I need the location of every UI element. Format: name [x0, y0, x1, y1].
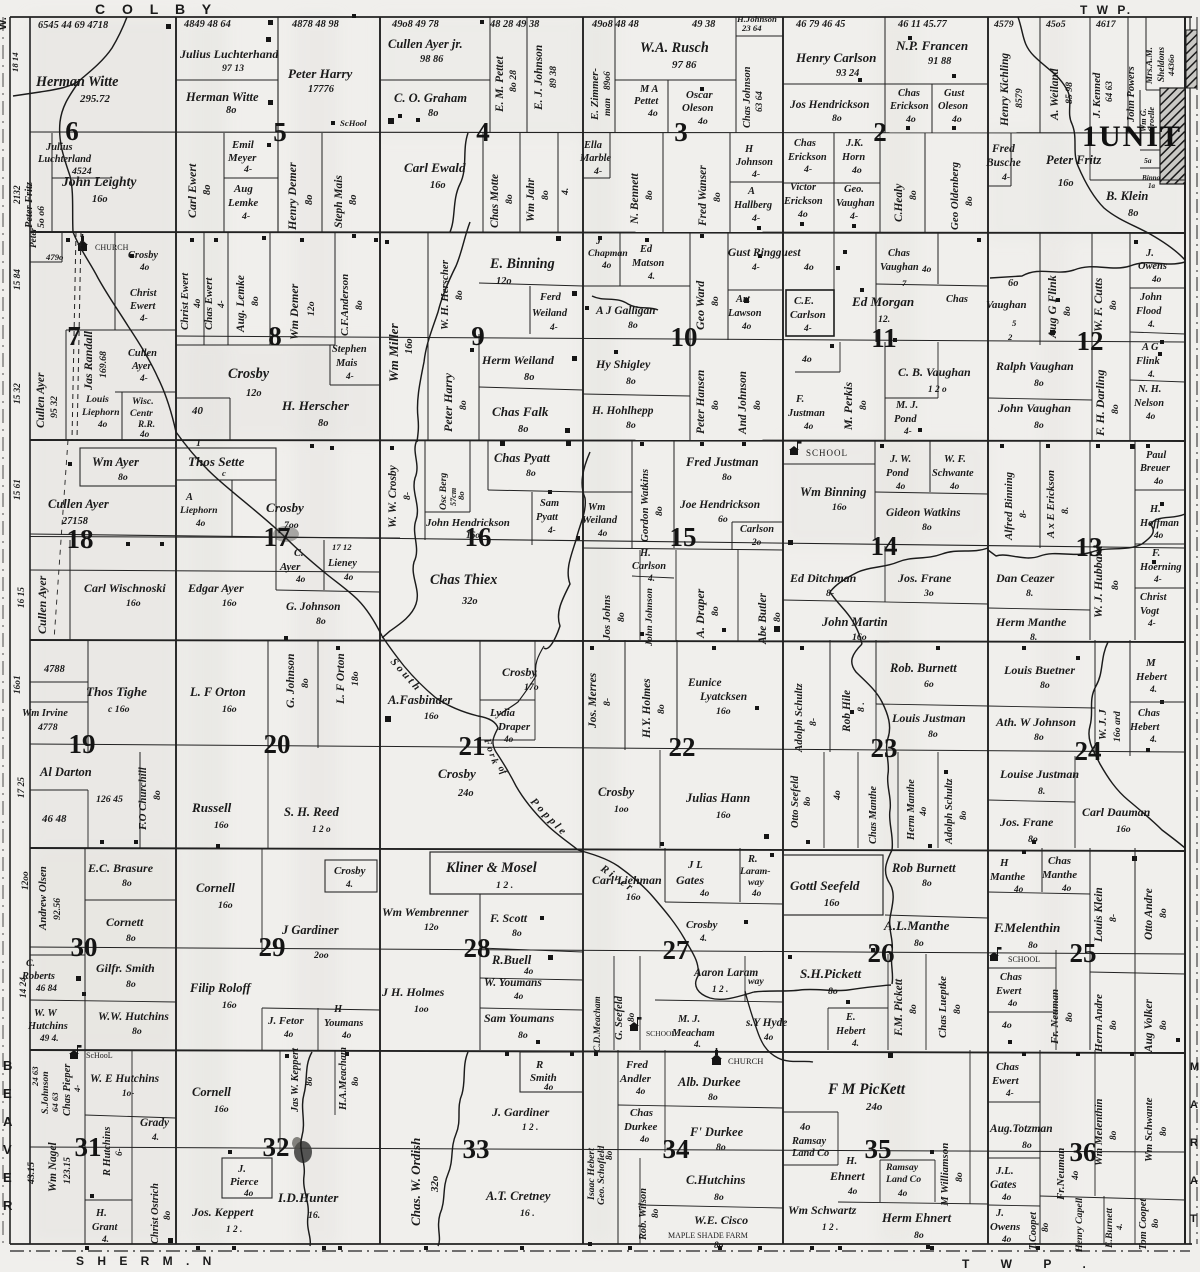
- svg-text:8o: 8o: [454, 290, 465, 300]
- svg-text:11: 11: [871, 323, 897, 353]
- svg-text:2oo: 2oo: [313, 950, 329, 961]
- svg-text:1oo: 1oo: [614, 804, 629, 815]
- svg-text:12o: 12o: [306, 301, 317, 316]
- svg-text:8o: 8o: [504, 194, 515, 204]
- svg-text:Aug: Aug: [233, 183, 253, 195]
- svg-text:Julias Hann: Julias Hann: [685, 791, 750, 805]
- svg-text:Grant: Grant: [92, 1222, 119, 1233]
- svg-text:4o: 4o: [139, 263, 150, 273]
- svg-text:1 2 o: 1 2 o: [312, 825, 331, 835]
- svg-text:Joe Hendrickson: Joe Hendrickson: [679, 499, 760, 511]
- svg-text:Carlson: Carlson: [740, 524, 774, 535]
- svg-text:Ewert: Ewert: [129, 301, 157, 312]
- svg-text:Christ: Christ: [130, 288, 158, 299]
- svg-text:8o: 8o: [354, 300, 365, 310]
- svg-text:4849 48 64: 4849 48 64: [183, 19, 231, 30]
- svg-text:12o: 12o: [246, 388, 262, 399]
- svg-text:Schwante: Schwante: [932, 468, 974, 479]
- svg-text:15 32: 15 32: [13, 383, 23, 404]
- svg-text:8o: 8o: [714, 1192, 724, 1203]
- svg-text:8o: 8o: [518, 424, 528, 435]
- svg-text:A. Draper: A. Draper: [693, 588, 707, 639]
- svg-text:8o: 8o: [656, 704, 667, 714]
- svg-text:6o: 6o: [1008, 278, 1018, 289]
- svg-text:J. W.: J. W.: [889, 454, 911, 465]
- svg-text:And Johnson: And Johnson: [737, 371, 749, 435]
- svg-text:8o: 8o: [316, 616, 326, 627]
- svg-text:Dan Ceazer: Dan Ceazer: [995, 571, 1055, 585]
- svg-text:C. B. Vaughan: C. B. Vaughan: [898, 365, 971, 379]
- svg-text:Cornell: Cornell: [192, 1085, 231, 1099]
- svg-text:4o: 4o: [1013, 885, 1024, 895]
- svg-text:Meacham: Meacham: [671, 1028, 715, 1039]
- svg-text:6545 44 69 4718: 6545 44 69 4718: [38, 20, 109, 31]
- svg-text:8o: 8o: [712, 192, 723, 202]
- svg-text:Gust: Gust: [944, 88, 965, 99]
- svg-text:8-: 8-: [402, 492, 413, 500]
- svg-text:8-: 8-: [602, 698, 613, 706]
- svg-text:Crosby: Crosby: [266, 500, 304, 515]
- svg-text:8o: 8o: [1028, 940, 1038, 951]
- svg-text:Adolph Schultz: Adolph Schultz: [793, 683, 805, 753]
- svg-text:12: 12: [1077, 326, 1104, 356]
- svg-text:89o6: 89o6: [603, 71, 613, 90]
- svg-text:1 2 o: 1 2 o: [928, 385, 947, 395]
- svg-text:8o: 8o: [126, 933, 136, 944]
- svg-text:N. H.: N. H.: [1137, 384, 1161, 395]
- svg-text:C.: C.: [26, 958, 35, 969]
- svg-text:M A: M A: [639, 84, 658, 95]
- svg-text:Paul: Paul: [1146, 450, 1166, 461]
- svg-text:Jos. Frane: Jos. Frane: [999, 815, 1054, 829]
- svg-text:8o: 8o: [832, 113, 842, 124]
- svg-text:Osc Berg: Osc Berg: [438, 473, 449, 510]
- svg-text:8o: 8o: [1109, 1130, 1119, 1140]
- svg-text:M. Perkis: M. Perkis: [841, 382, 855, 431]
- svg-text:E. Binning: E. Binning: [489, 256, 555, 272]
- svg-text:V: V: [3, 1142, 12, 1157]
- svg-text:Aug Volker: Aug Volker: [1143, 999, 1155, 1053]
- svg-text:Fred Wanser: Fred Wanser: [697, 165, 709, 227]
- svg-text:5: 5: [273, 117, 287, 147]
- svg-text:Ath. W Johnson: Ath. W Johnson: [995, 715, 1076, 729]
- svg-text:Hutchins: Hutchins: [27, 1021, 68, 1032]
- svg-text:Horn: Horn: [841, 152, 865, 163]
- svg-text:John Johnson: John Johnson: [644, 588, 655, 647]
- svg-text:W. F. Cutts: W. F. Cutts: [1091, 277, 1105, 332]
- svg-text:8o: 8o: [628, 320, 638, 331]
- svg-text:Christ Ewert: Christ Ewert: [179, 272, 191, 330]
- svg-text:4o: 4o: [801, 354, 812, 365]
- svg-text:Weiland: Weiland: [532, 308, 568, 319]
- svg-text:4-: 4-: [139, 314, 148, 324]
- svg-text:R.Buell: R.Buell: [491, 953, 532, 967]
- svg-text:Herm Manthe: Herm Manthe: [906, 779, 917, 841]
- svg-text:Carl Ewert: Carl Ewert: [185, 163, 199, 218]
- svg-text:2132: 2132: [13, 185, 23, 205]
- svg-text:Crosby: Crosby: [334, 865, 366, 877]
- svg-text:33: 33: [463, 1134, 490, 1164]
- svg-text:8o: 8o: [1022, 1140, 1032, 1151]
- svg-text:E. M. Pettet: E. M. Pettet: [494, 55, 506, 113]
- svg-text:Jos Johns: Jos Johns: [601, 595, 613, 641]
- svg-text:Christ: Christ: [1140, 592, 1168, 603]
- svg-text:W.E. Cisco: W.E. Cisco: [694, 1213, 748, 1227]
- svg-text:M: M: [1190, 1061, 1199, 1073]
- svg-text:Chas Lueptke: Chas Lueptke: [937, 976, 949, 1038]
- svg-text:Abe Butler: Abe Butler: [757, 592, 769, 645]
- svg-text:8o: 8o: [1041, 1222, 1051, 1232]
- svg-text:F.O Churchill: F.O Churchill: [137, 766, 149, 831]
- svg-text:Vaughan: Vaughan: [836, 198, 875, 209]
- svg-text:Herm Weiland: Herm Weiland: [481, 353, 555, 367]
- svg-text:Wm Schwante: Wm Schwante: [1143, 1097, 1155, 1162]
- svg-text:Hy Shigley: Hy Shigley: [595, 357, 651, 371]
- svg-text:Flood: Flood: [1135, 306, 1162, 317]
- svg-text:8o: 8o: [1034, 378, 1044, 389]
- svg-text:1 2 .: 1 2 .: [822, 1223, 838, 1233]
- svg-text:4-: 4-: [217, 300, 227, 309]
- svg-text:4o: 4o: [1061, 884, 1072, 894]
- svg-text:49 38: 49 38: [691, 19, 716, 30]
- svg-text:Alb. Durkee: Alb. Durkee: [677, 1075, 741, 1089]
- svg-text:Emil: Emil: [231, 139, 255, 151]
- svg-text:4o: 4o: [97, 420, 108, 430]
- svg-text:9: 9: [471, 321, 485, 351]
- svg-text:8.: 8.: [1030, 632, 1037, 643]
- svg-text:MAPLE SHADE FARM: MAPLE SHADE FARM: [668, 1231, 748, 1240]
- svg-text:16o: 16o: [430, 180, 446, 191]
- svg-text:Oleson: Oleson: [938, 101, 968, 112]
- svg-text:8o: 8o: [1108, 1020, 1119, 1030]
- svg-text:way: way: [748, 877, 764, 888]
- svg-text:8o: 8o: [914, 938, 924, 949]
- svg-text:8o: 8o: [152, 790, 163, 800]
- svg-text:8o: 8o: [627, 1012, 637, 1022]
- svg-text:Alfred Binning: Alfred Binning: [1003, 471, 1015, 541]
- svg-text:Cornett: Cornett: [106, 915, 144, 929]
- svg-text:4o: 4o: [763, 1033, 774, 1043]
- svg-text:Russell: Russell: [191, 800, 232, 815]
- svg-text:64 63: 64 63: [50, 1092, 60, 1112]
- svg-text:J.: J.: [995, 1208, 1004, 1219]
- svg-text:Manthe: Manthe: [1041, 869, 1077, 881]
- svg-text:4-: 4-: [1005, 1089, 1014, 1099]
- svg-text:8-: 8-: [1018, 510, 1029, 518]
- svg-text:18 14: 18 14: [10, 52, 20, 72]
- svg-text:Chas. W. Ordish: Chas. W. Ordish: [408, 1138, 423, 1226]
- svg-text:64 63: 64 63: [1105, 81, 1115, 102]
- svg-text:Pettet: Pettet: [634, 96, 659, 107]
- svg-text:29: 29: [259, 932, 286, 962]
- svg-text:H.A.Meacham: H.A.Meacham: [338, 1047, 349, 1111]
- svg-text:4o: 4o: [847, 1187, 858, 1197]
- svg-text:Cullen Ayer: Cullen Ayer: [48, 497, 109, 511]
- svg-text:4-: 4-: [241, 211, 250, 222]
- svg-text:4-: 4-: [345, 372, 354, 382]
- svg-text:Ramsay: Ramsay: [791, 1136, 826, 1147]
- svg-text:Flink: Flink: [1135, 356, 1160, 367]
- svg-text:Chas: Chas: [1138, 708, 1160, 719]
- svg-text:Hebert: Hebert: [835, 1026, 867, 1037]
- svg-text:Herman Witte: Herman Witte: [185, 90, 259, 104]
- svg-text:4-: 4-: [1153, 575, 1162, 585]
- svg-text:4.: 4.: [647, 272, 655, 282]
- svg-text:Weiland: Weiland: [582, 515, 618, 526]
- svg-text:A: A: [185, 492, 193, 503]
- svg-text:Kliner & Mosel: Kliner & Mosel: [445, 860, 537, 876]
- svg-text:31: 31: [75, 1132, 102, 1162]
- svg-text:8o: 8o: [708, 1092, 718, 1103]
- svg-text:8o: 8o: [1064, 1012, 1075, 1022]
- svg-text:J.: J.: [237, 1164, 246, 1175]
- svg-text:4o: 4o: [1151, 275, 1162, 285]
- svg-text:16 .: 16 .: [520, 1208, 535, 1219]
- svg-text:H.: H.: [95, 1208, 107, 1219]
- svg-text:4o: 4o: [1007, 999, 1018, 1009]
- svg-text:12oo: 12oo: [21, 871, 31, 890]
- svg-text:E: E: [3, 1170, 12, 1185]
- svg-text:8o: 8o: [1034, 732, 1044, 743]
- svg-text:Pierce: Pierce: [230, 1176, 259, 1188]
- svg-text:4-: 4-: [903, 427, 912, 437]
- svg-text:8.: 8.: [1026, 588, 1033, 599]
- svg-text:Cullen Ayer jr.: Cullen Ayer jr.: [388, 37, 463, 51]
- svg-text:Edgar Ayer: Edgar Ayer: [187, 581, 244, 595]
- svg-text:4o: 4o: [513, 992, 524, 1002]
- svg-text:35: 35: [865, 1134, 892, 1164]
- svg-text:John Leighty: John Leighty: [61, 174, 137, 189]
- svg-text:Carl Dauman: Carl Dauman: [1082, 805, 1151, 819]
- svg-text:8o: 8o: [714, 1241, 724, 1251]
- svg-text:Chas Pyatt: Chas Pyatt: [494, 451, 550, 465]
- svg-text:46 84: 46 84: [35, 984, 57, 994]
- svg-text:15: 15: [670, 522, 697, 552]
- svg-text:Louis Buetner: Louis Buetner: [1003, 663, 1075, 677]
- svg-text:4-: 4-: [1147, 619, 1156, 629]
- svg-text:1 2 .: 1 2 .: [496, 880, 513, 891]
- svg-text:4-: 4-: [139, 374, 148, 384]
- svg-text:36: 36: [1070, 1137, 1097, 1167]
- svg-text:8o: 8o: [318, 418, 328, 429]
- svg-text:16o: 16o: [716, 706, 731, 717]
- svg-text:4-: 4-: [593, 166, 602, 177]
- svg-text:Crosby: Crosby: [686, 919, 718, 931]
- svg-text:4o: 4o: [343, 573, 354, 583]
- svg-text:Manthe: Manthe: [989, 871, 1025, 883]
- svg-text:8o: 8o: [118, 472, 128, 483]
- svg-text:8o: 8o: [512, 928, 522, 939]
- svg-text:4o: 4o: [597, 529, 608, 539]
- svg-text:10: 10: [671, 322, 698, 352]
- svg-text:98 86: 98 86: [420, 54, 444, 65]
- svg-text:8o: 8o: [710, 400, 721, 410]
- svg-text:N.P. Francen: N.P. Francen: [895, 38, 968, 53]
- svg-text:Fred Justman: Fred Justman: [685, 455, 759, 469]
- svg-text:Land Co: Land Co: [791, 1148, 829, 1159]
- svg-text:4.: 4.: [1147, 320, 1155, 330]
- svg-text:4o: 4o: [139, 430, 150, 440]
- svg-text:R.: R.: [747, 854, 758, 865]
- svg-text:4878 48 98: 4878 48 98: [291, 19, 340, 30]
- svg-text:B. Klein: B. Klein: [1105, 189, 1148, 203]
- svg-text:4o: 4o: [897, 1189, 908, 1199]
- svg-text:Draper: Draper: [497, 721, 531, 733]
- svg-text:Vaughan: Vaughan: [880, 262, 919, 273]
- svg-text:Ed Morgan: Ed Morgan: [851, 294, 914, 309]
- svg-text:F. Scott: F. Scott: [489, 911, 528, 925]
- svg-text:H. Hohlhepp: H. Hohlhepp: [591, 405, 654, 417]
- svg-text:97 86: 97 86: [672, 59, 697, 71]
- svg-text:4.: 4.: [345, 880, 353, 890]
- svg-text:5o o6: 5o o6: [36, 206, 47, 228]
- svg-text:Nelson: Nelson: [1133, 398, 1164, 409]
- svg-text:4o: 4o: [295, 575, 306, 585]
- svg-text:Grady: Grady: [140, 1117, 170, 1129]
- svg-text:8o: 8o: [1159, 1126, 1169, 1136]
- svg-text:G. Johnson: G. Johnson: [285, 654, 297, 708]
- svg-text:A.Fasbinder: A.Fasbinder: [387, 693, 452, 707]
- svg-text:8o: 8o: [351, 1076, 361, 1086]
- svg-text:Fr.Neuman: Fr.Neuman: [1055, 1148, 1067, 1201]
- svg-text:8o: 8o: [300, 678, 311, 688]
- svg-text:8o: 8o: [202, 185, 213, 195]
- svg-text:Chas Motte: Chas Motte: [489, 174, 501, 228]
- svg-text:295.72: 295.72: [79, 93, 111, 105]
- svg-text:F. H. Darling: F. H. Darling: [1093, 370, 1107, 437]
- svg-text:4o: 4o: [635, 1087, 646, 1097]
- svg-text:8o: 8o: [1108, 300, 1119, 310]
- svg-text:Busche: Busche: [985, 157, 1021, 169]
- svg-text:4-: 4-: [1001, 172, 1010, 183]
- svg-text:1: 1: [196, 438, 201, 449]
- svg-text:4o: 4o: [895, 482, 906, 492]
- svg-text:Ewert: Ewert: [995, 986, 1023, 997]
- svg-text:4-: 4-: [849, 211, 858, 222]
- svg-text:H.: H.: [639, 548, 651, 559]
- svg-text:Thos Tighe: Thos Tighe: [86, 684, 147, 699]
- svg-text:R: R: [535, 1059, 543, 1071]
- svg-text:Gottl Seefeld: Gottl Seefeld: [790, 878, 860, 893]
- svg-text:R.R.: R.R.: [137, 420, 155, 430]
- svg-text:8o: 8o: [922, 522, 932, 533]
- svg-text:Otto Seefeld: Otto Seefeld: [790, 775, 801, 828]
- svg-text:13: 13: [1076, 532, 1103, 562]
- svg-text:Rob. Burnett: Rob. Burnett: [889, 661, 957, 675]
- svg-text:Carl Wischnoski: Carl Wischnoski: [84, 581, 166, 595]
- svg-text:C.Hutchins: C.Hutchins: [686, 1173, 746, 1187]
- svg-text:T.Coopet: T.Coopet: [1028, 1211, 1039, 1250]
- svg-text:Wm Jahr: Wm Jahr: [525, 177, 537, 222]
- svg-text:Gates: Gates: [676, 873, 704, 887]
- svg-text:Louis Klein: Louis Klein: [1093, 887, 1105, 943]
- svg-text:Lieney: Lieney: [327, 558, 357, 569]
- svg-text:Chas: Chas: [888, 248, 910, 259]
- svg-text:Art: Art: [735, 294, 751, 305]
- svg-text:3: 3: [674, 117, 688, 147]
- svg-text:8o: 8o: [226, 105, 236, 116]
- svg-text:4o: 4o: [949, 482, 960, 492]
- svg-text:W. W: W. W: [34, 1008, 57, 1019]
- svg-text:Vogt: Vogt: [1140, 606, 1160, 617]
- svg-text:Chas: Chas: [1048, 855, 1071, 867]
- svg-text:23 64: 23 64: [741, 23, 762, 33]
- svg-text:s.Y Hyde: s.Y Hyde: [745, 1017, 787, 1029]
- svg-text:4.: 4.: [647, 574, 655, 584]
- svg-text:16o: 16o: [218, 900, 233, 911]
- svg-text:F' Durkee: F' Durkee: [689, 1125, 744, 1139]
- svg-text:4o: 4o: [243, 1189, 254, 1199]
- svg-text:8o: 8o: [1110, 404, 1121, 414]
- svg-text:16o: 16o: [716, 810, 731, 821]
- svg-text:8.: 8.: [1038, 786, 1045, 797]
- svg-text:40: 40: [191, 405, 203, 417]
- svg-text:4o: 4o: [639, 1135, 650, 1145]
- svg-text:16o ard: 16o ard: [1112, 710, 1123, 742]
- svg-text:Oleson: Oleson: [682, 102, 713, 114]
- svg-text:26: 26: [868, 938, 895, 968]
- svg-text:8 .: 8 .: [856, 702, 867, 712]
- svg-text:Ewert: Ewert: [991, 1075, 1020, 1087]
- svg-text:J.: J.: [1145, 248, 1154, 259]
- svg-text:Roberts: Roberts: [21, 971, 55, 982]
- svg-text:F M PicKett: F M PicKett: [827, 1081, 906, 1098]
- svg-text:126 45: 126 45: [96, 794, 123, 805]
- svg-text:F.: F.: [795, 394, 804, 405]
- svg-text:Crosby: Crosby: [438, 766, 476, 781]
- svg-text:Oscar: Oscar: [686, 89, 713, 101]
- svg-text:H.: H.: [1149, 504, 1161, 515]
- svg-text:8o: 8o: [626, 376, 636, 387]
- svg-text:16o: 16o: [1058, 178, 1074, 189]
- svg-text:J H. Holmes: J H. Holmes: [381, 985, 445, 999]
- svg-text:W. H. Herscher: W. H. Herscher: [439, 259, 451, 330]
- svg-text:c: c: [222, 468, 226, 478]
- svg-text:2: 2: [1007, 332, 1013, 342]
- svg-text:8o: 8o: [1028, 834, 1038, 845]
- svg-text:Liephorn: Liephorn: [179, 505, 218, 516]
- svg-text:8o: 8o: [1040, 680, 1050, 691]
- svg-text:8o: 8o: [1151, 1218, 1161, 1228]
- svg-text:Peter Harry: Peter Harry: [288, 66, 353, 81]
- svg-text:1a: 1a: [1148, 182, 1156, 190]
- svg-text:W. E Hutchins: W. E Hutchins: [90, 1073, 160, 1085]
- svg-text:Henry Demer: Henry Demer: [285, 162, 299, 231]
- svg-text:Hoffman: Hoffman: [1139, 518, 1179, 529]
- svg-text:8o: 8o: [1034, 420, 1044, 431]
- svg-text:16o: 16o: [824, 898, 840, 909]
- svg-text:6: 6: [65, 116, 79, 146]
- svg-text:Meyer: Meyer: [227, 152, 257, 164]
- svg-text:SCHOOL: SCHOOL: [1008, 955, 1040, 964]
- svg-text:97 13: 97 13: [222, 63, 244, 74]
- svg-text:Breuer: Breuer: [1139, 463, 1171, 474]
- svg-text:J Gardiner: J Gardiner: [281, 923, 339, 937]
- svg-text:43.15: 43.15: [26, 1162, 37, 1185]
- svg-text:Wm Ayer: Wm Ayer: [92, 455, 139, 469]
- svg-text:4o: 4o: [195, 519, 206, 529]
- svg-text:C. O. Graham: C. O. Graham: [394, 91, 467, 105]
- svg-text:16 15: 16 15: [17, 587, 27, 608]
- svg-text:B: B: [3, 1058, 12, 1073]
- svg-text:1UNIT: 1UNIT: [1082, 120, 1182, 153]
- svg-text:H: H: [999, 857, 1009, 869]
- svg-text:Eunice: Eunice: [687, 677, 722, 689]
- svg-text:24o: 24o: [865, 1101, 883, 1113]
- svg-text:4-: 4-: [751, 213, 760, 224]
- svg-text:14: 14: [871, 531, 898, 561]
- svg-text:Hoerning: Hoerning: [1139, 562, 1182, 573]
